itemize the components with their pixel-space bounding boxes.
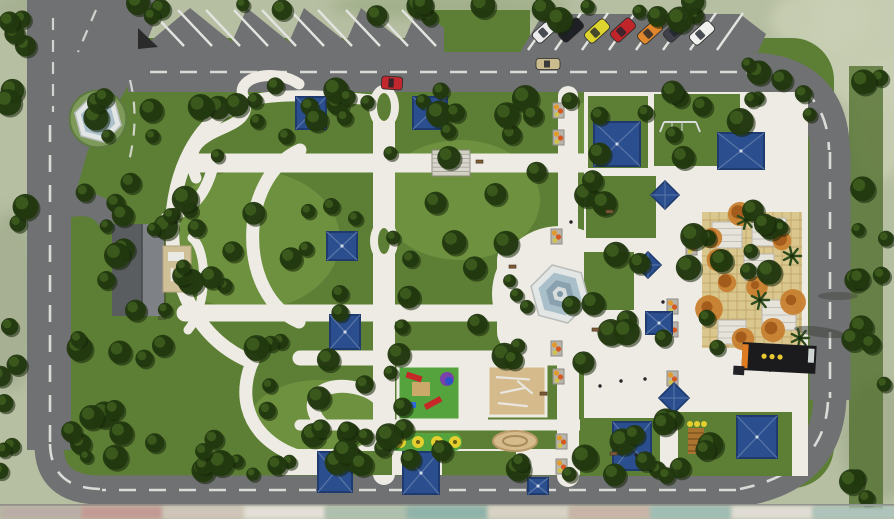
tree-highlight (606, 244, 619, 257)
moving-car (381, 76, 403, 90)
bench (476, 160, 483, 163)
flowers-orange (552, 342, 557, 347)
tent-peak (739, 149, 742, 152)
tree-highlight (101, 221, 108, 228)
park-master-plan-rendering (0, 0, 894, 519)
tree-highlight (264, 380, 271, 387)
tree-highlight (78, 185, 87, 194)
palm-crown (790, 254, 794, 258)
tree-highlight (649, 8, 659, 18)
play-dome-blue (445, 377, 453, 385)
elevation-segment (731, 506, 813, 519)
tree-highlight (340, 423, 349, 432)
tree-highlight (606, 466, 617, 477)
tree-highlight (127, 302, 138, 313)
tree-highlight (357, 377, 366, 386)
tree-highlight (637, 453, 647, 463)
tree-highlight (353, 455, 364, 466)
tree-highlight (627, 427, 637, 437)
tree-highlight (634, 6, 641, 13)
car-windshield (544, 61, 550, 68)
tree-highlight (563, 468, 570, 475)
tree-highlight (261, 403, 270, 412)
kiosk-accent (741, 344, 748, 368)
pedestrian (598, 384, 601, 387)
tree-highlight (664, 83, 675, 94)
tree-highlight (282, 249, 293, 260)
elevation-segment (406, 506, 488, 519)
tent-peak (536, 484, 539, 487)
tree-highlight (300, 243, 307, 250)
bench (606, 210, 613, 213)
tree-highlight (203, 269, 214, 280)
tree-highlight (851, 270, 861, 280)
tree-highlight (880, 232, 888, 240)
tree-highlight (525, 107, 535, 117)
kiosk-skylight (808, 349, 815, 363)
tree-highlight (853, 179, 865, 191)
tree-highlight (197, 445, 205, 453)
tree-highlight (148, 224, 155, 231)
tent-peak (343, 330, 346, 333)
flowers-orange (554, 104, 559, 109)
tree-highlight (639, 107, 647, 115)
elevation-segment (325, 506, 407, 519)
tree-highlight (600, 322, 613, 335)
tree-highlight (591, 145, 602, 156)
tree-highlight (442, 125, 450, 133)
tree-highlight (712, 251, 724, 263)
tree-highlight (106, 447, 119, 460)
tree-highlight (776, 222, 783, 229)
tree-highlight (616, 322, 629, 335)
elevation-segment (650, 506, 732, 519)
tree-highlight (549, 10, 562, 23)
pedestrian (661, 300, 664, 303)
tree-highlight (369, 7, 379, 17)
bench (592, 328, 599, 331)
tree-highlight (390, 345, 401, 356)
tree-highlight (672, 460, 682, 470)
tree-highlight (404, 252, 412, 260)
flowers-orange (668, 300, 673, 305)
tree-highlight (81, 451, 88, 458)
tree-highlight (745, 245, 752, 252)
tree-highlight (660, 469, 668, 477)
autumn-tree-shade (735, 331, 746, 342)
pedestrian (569, 220, 572, 223)
flowers-yellow (553, 350, 558, 355)
tree-highlight (99, 273, 108, 282)
tree-highlight (396, 321, 404, 329)
tree-highlight (592, 108, 601, 117)
tree-highlight (147, 435, 157, 445)
tree-highlight (595, 194, 607, 206)
tree-highlight (159, 304, 166, 311)
tree-highlight (103, 131, 110, 138)
tree-highlight (679, 257, 692, 270)
tree-highlight (469, 316, 479, 326)
tree-highlight (506, 352, 516, 362)
tree-highlight (584, 294, 596, 306)
flowers-orange (557, 435, 562, 440)
tree-highlight (385, 148, 392, 155)
elevation-segment (813, 506, 894, 519)
tree-highlight (875, 268, 884, 277)
flowers-orange (554, 131, 559, 136)
tree-highlight (711, 341, 719, 349)
tree-highlight (319, 351, 330, 362)
palm-crown (798, 336, 802, 340)
car-windshield (388, 78, 394, 87)
tree-highlight (631, 255, 641, 265)
tree-highlight (564, 298, 573, 307)
tree-highlight (114, 206, 125, 217)
tree-highlight (123, 175, 133, 185)
tree-highlight (854, 72, 867, 85)
tree-highlight (362, 97, 369, 104)
tree-highlight (142, 101, 154, 113)
elevation-segment (244, 506, 326, 519)
moving-car (536, 59, 560, 70)
flowers-orange (557, 460, 562, 465)
pedestrian (643, 377, 646, 380)
autumn-tree-shade (786, 295, 797, 306)
tree-highlight (667, 128, 675, 136)
bench (509, 265, 516, 268)
tree-highlight (245, 204, 256, 215)
tree-highlight (385, 367, 392, 374)
tree-highlight (852, 318, 864, 330)
tree-highlight (497, 105, 510, 118)
bench (610, 452, 617, 455)
tree-highlight (842, 472, 855, 485)
tree-highlight (434, 84, 442, 92)
flowers-yellow (555, 139, 560, 144)
tree-highlight (107, 245, 120, 258)
tree-highlight (302, 99, 311, 108)
tree-highlight (774, 71, 785, 82)
tree-highlight (228, 95, 240, 107)
climber-ball (694, 421, 700, 427)
site-plan-canvas (0, 0, 894, 519)
spring-rider-center (453, 440, 457, 444)
tree-highlight (403, 451, 413, 461)
tree-highlight (683, 226, 696, 239)
tree-highlight (107, 402, 117, 412)
tree-highlight (529, 164, 539, 174)
tree-highlight (112, 424, 124, 436)
tree-highlight (853, 224, 860, 231)
tree-highlight (310, 389, 322, 401)
tree-highlight (146, 10, 154, 18)
tree-highlight (269, 79, 278, 88)
tree-highlight (513, 455, 522, 464)
tree-highlight (252, 115, 259, 122)
tree-highlight (487, 185, 498, 196)
tree-highlight (15, 196, 28, 209)
tree-highlight (515, 88, 528, 101)
tree-highlight (844, 330, 856, 342)
sheet-divider (0, 504, 894, 506)
tree-highlight (756, 216, 767, 227)
playground-walk (460, 362, 488, 420)
tree-highlight (1, 13, 11, 23)
elevation-segment (163, 506, 245, 519)
tree-highlight (797, 87, 806, 96)
tree-highlight (466, 259, 478, 271)
tree-highlight (698, 442, 708, 452)
tree-highlight (575, 447, 588, 460)
flowers-orange (552, 230, 557, 235)
tree-highlight (400, 288, 411, 299)
tree-highlight (274, 2, 284, 12)
tree-highlight (860, 492, 868, 500)
climber-ball (701, 421, 707, 427)
tree-highlight (307, 111, 319, 123)
tree-highlight (670, 9, 683, 22)
tree-highlight (9, 357, 19, 367)
flowers-yellow (555, 378, 560, 383)
tree-highlight (249, 94, 257, 102)
tree-highlight (63, 423, 73, 433)
tree-highlight (269, 457, 279, 467)
flowers-yellow (558, 468, 563, 473)
tree-highlight (657, 331, 666, 340)
tree-highlight (878, 378, 885, 385)
tree-highlight (730, 111, 743, 124)
tree-highlight (496, 233, 508, 245)
tree-highlight (165, 210, 172, 217)
tree-highlight (584, 172, 595, 183)
tree-highlight (147, 131, 154, 138)
tree-highlight (313, 421, 322, 430)
flowers-yellow (553, 238, 558, 243)
tree-highlight (655, 415, 666, 426)
elevation-segment (81, 506, 163, 519)
palm-crown (758, 298, 762, 302)
pedestrian (619, 379, 622, 382)
flowers-yellow (558, 443, 563, 448)
pedestrian (634, 453, 637, 456)
tree-highlight (582, 1, 589, 8)
tree-highlight (674, 148, 686, 160)
tree-highlight (334, 287, 342, 295)
tree-highlight (326, 80, 339, 93)
tree-highlight (246, 338, 259, 351)
kiosk-annex (733, 366, 744, 376)
tree-highlight (225, 243, 235, 253)
tree-highlight (72, 333, 80, 341)
spring-rider-center (416, 440, 420, 444)
tree-highlight (429, 103, 442, 116)
tree-highlight (440, 148, 452, 160)
tree-highlight (137, 351, 146, 360)
log-ring-sandpit (493, 431, 537, 451)
tree-highlight (191, 97, 204, 110)
tree-highlight (333, 306, 342, 315)
tent-peak (615, 142, 618, 145)
flowers-orange (554, 370, 559, 375)
tent-peak (657, 321, 660, 324)
tree-highlight (338, 111, 346, 119)
elevation-segment (488, 506, 570, 519)
tree-highlight (379, 426, 392, 439)
tree-highlight (207, 432, 217, 442)
tree-highlight (350, 213, 357, 220)
tree-highlight (512, 340, 519, 347)
tree-highlight (746, 93, 754, 101)
tree-highlight (395, 399, 404, 408)
tree-highlight (325, 200, 333, 208)
tree-highlight (511, 290, 518, 297)
tree-highlight (434, 442, 445, 453)
tree-highlight (700, 311, 708, 319)
tree-highlight (111, 343, 123, 355)
flowers-yellow (555, 112, 560, 117)
tree-highlight (212, 151, 219, 158)
adjacent-elevation-strip (0, 504, 894, 519)
tree-highlight (177, 261, 184, 268)
tree-highlight (448, 105, 457, 114)
tree-highlight (97, 90, 106, 99)
tree-highlight (108, 196, 117, 205)
palm-shadow-on-road (818, 292, 858, 300)
tree-highlight (359, 430, 367, 438)
tree-highlight (417, 96, 424, 103)
tree-highlight (336, 442, 348, 454)
tree-highlight (154, 337, 165, 348)
tree-highlight (3, 320, 12, 329)
annex-skylight (168, 252, 184, 261)
autumn-tree-shade (765, 322, 778, 335)
tree-highlight (280, 130, 288, 138)
tree-highlight (190, 221, 199, 230)
tree-highlight (742, 264, 750, 272)
tree-highlight (743, 59, 750, 66)
tree-highlight (804, 109, 811, 116)
tree-highlight (863, 336, 873, 346)
tree-highlight (427, 194, 438, 205)
bench (540, 392, 547, 395)
autumn-tree-shade (718, 274, 731, 287)
tree-highlight (175, 188, 188, 201)
climber-ball (687, 421, 693, 427)
tree-highlight (82, 407, 94, 419)
flowers-orange (668, 372, 673, 377)
elevation-segment (0, 506, 82, 519)
tree-highlight (445, 232, 457, 244)
sand-play-surface (488, 366, 546, 416)
tent-peak (419, 471, 422, 474)
tree-highlight (388, 232, 395, 239)
elevation-segment (569, 506, 651, 519)
tree-highlight (303, 205, 310, 212)
tree-highlight (248, 469, 255, 476)
tree-highlight (563, 94, 571, 102)
central-fountain-jet (557, 291, 563, 297)
tree-highlight (534, 0, 546, 12)
autumn-tree-shade (751, 281, 759, 289)
tent-peak (340, 244, 343, 247)
tree-highlight (744, 202, 755, 213)
play-structure-deck (412, 382, 430, 396)
tree-highlight (575, 354, 586, 365)
tree-highlight (342, 91, 350, 99)
tree-highlight (695, 98, 705, 108)
tree-highlight (760, 262, 772, 274)
tree-highlight (505, 276, 512, 283)
tree-highlight (521, 301, 528, 308)
tree-highlight (612, 431, 625, 444)
tent-peak (755, 435, 758, 438)
